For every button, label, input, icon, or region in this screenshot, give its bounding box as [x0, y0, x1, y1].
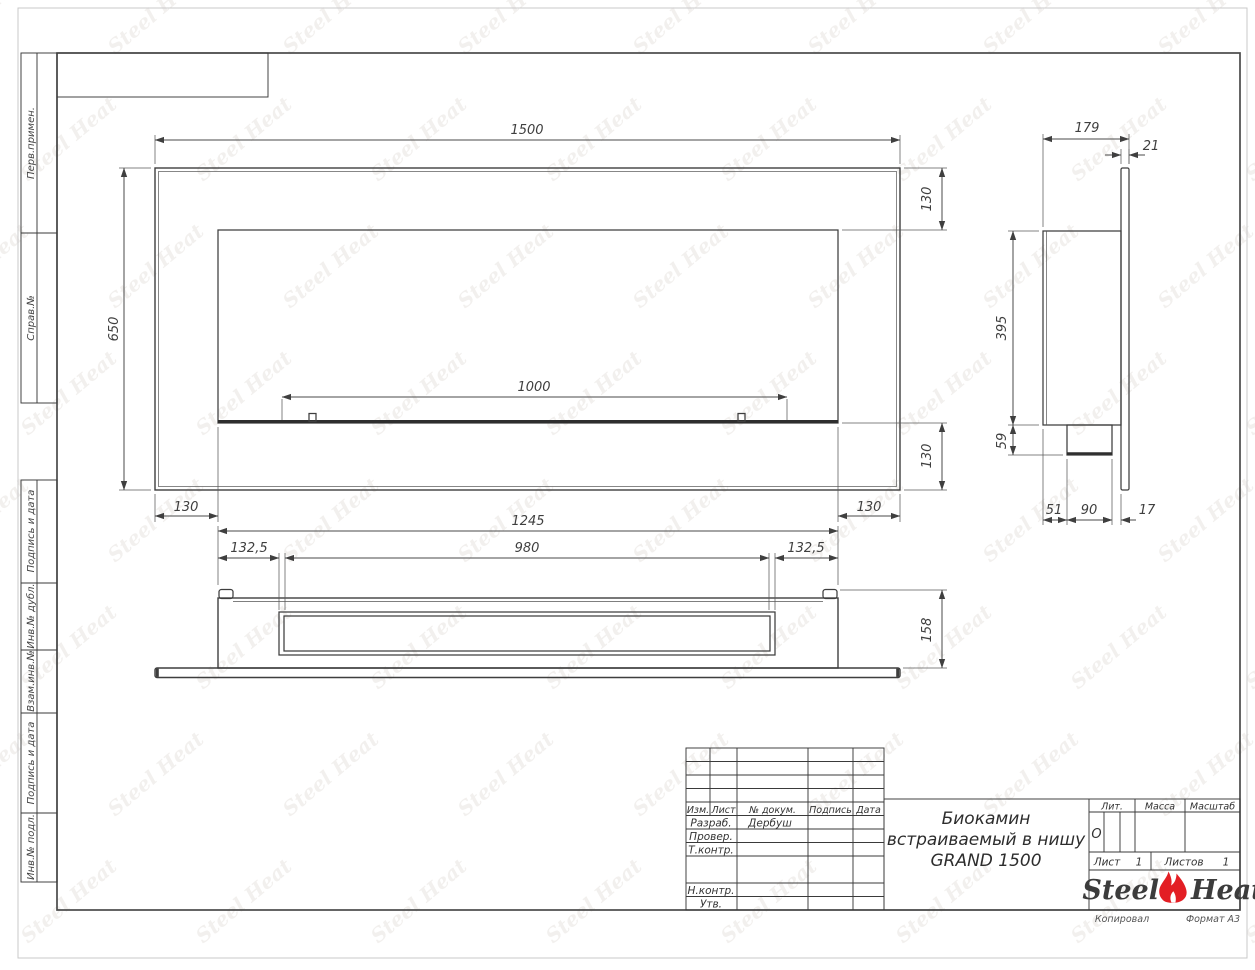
watermark-text: Steel Heat [891, 345, 997, 439]
watermark-text: Steel Heat [891, 91, 997, 185]
dim-front-width: 1500 [510, 123, 543, 138]
clip-left [219, 590, 233, 599]
dim-bottom-opening: 980 [515, 541, 540, 556]
sheet-label: Лист [1093, 857, 1121, 869]
col-doc: № докум. [748, 805, 796, 816]
sidebar-label: Инв.№ подл. [26, 814, 37, 880]
role-label: Разраб. [690, 818, 731, 830]
format-caption: Формат А3 [1186, 914, 1240, 925]
front-view: 1500 650 130 130 1000 130 130 [107, 123, 947, 522]
col-list: Лист [710, 805, 736, 816]
role-label: Утв. [700, 899, 722, 911]
dim-bottom-depth: 158 [920, 618, 935, 643]
sheets-label: Листов [1163, 857, 1203, 869]
col-izm: Изм. [687, 805, 709, 816]
lit-label: Лит. [1100, 802, 1123, 813]
dim-front-height: 650 [107, 317, 122, 342]
watermark-text: Steel Heat [453, 726, 559, 820]
watermark-text: Steel Heat [803, 0, 909, 59]
sidebar-box: Справ.№ [21, 233, 57, 403]
watermark-text: Steel Heat [366, 599, 472, 693]
watermark-text: Steel Heat [1066, 345, 1172, 439]
dim-burner-depth: 90 [1081, 503, 1098, 518]
watermark-text: Steel Heat [1153, 0, 1255, 59]
watermark-text: Steel Heat [453, 0, 559, 59]
mass-label: Масса [1145, 802, 1175, 813]
watermark-text: Steel Heat [716, 345, 822, 439]
watermark-text: Steel Heat [1241, 345, 1255, 439]
scale-label: Масштаб [1190, 802, 1235, 813]
dim-front-offset-top: 130 [920, 187, 935, 212]
col-sign: Подпись [809, 805, 852, 816]
watermark-text: Steel Heat [453, 218, 559, 312]
watermark-text: Steel Heat [541, 599, 647, 693]
watermark-text: Steel Heat [716, 599, 822, 693]
sidebar-label: Подпись и дата [26, 490, 37, 573]
watermark-text: Steel Heat [716, 853, 822, 947]
watermark-text: Steel Heat [1241, 91, 1255, 185]
sidebar-box: Инв.№ дубл. [21, 583, 57, 650]
bottom-slot-inner [284, 616, 770, 651]
dim-back-offset: 51 [1046, 503, 1063, 518]
watermark-text: Steel Heat [191, 599, 297, 693]
watermark-text: Steel Heat [803, 218, 909, 312]
role-label: Провер. [689, 831, 733, 843]
watermark-text: Steel Heat [628, 218, 734, 312]
watermark-text: Steel Heat [0, 0, 34, 59]
dim-panel-thickness: 21 [1143, 139, 1160, 154]
watermark-text: Steel Heat [16, 345, 122, 439]
watermark-text: Steel Heat [103, 726, 209, 820]
role-label: Н.контр. [688, 885, 735, 897]
copied-caption: Копировал [1095, 914, 1149, 925]
side-front-panel [1121, 168, 1129, 490]
dim-burner-height: 59 [995, 433, 1010, 450]
lit-value: О [1091, 827, 1101, 842]
dim-bottom-margin-left: 132,5 [230, 541, 267, 556]
doc-title-line3: GRAND 1500 [930, 851, 1041, 871]
sidebar-label: Справ.№ [26, 295, 37, 340]
col-date: Дата [855, 805, 881, 816]
watermark-text: Steel Heat [103, 218, 209, 312]
logo-word2: Heat [1190, 875, 1255, 906]
sidebar-label: Инв.№ дубл. [25, 583, 37, 648]
watermark-text: Steel Heat [541, 345, 647, 439]
dim-bottom-overall: 1245 [511, 514, 544, 529]
sidebar-box: Подпись и дата [21, 480, 57, 583]
dim-bottom-margin-right: 132,5 [787, 541, 824, 556]
dim-front-offset-right: 130 [857, 500, 882, 515]
watermark-text: Steel Heat [628, 0, 734, 59]
watermark-text: Steel Heat [191, 345, 297, 439]
sheet-value: 1 [1136, 857, 1143, 869]
logo-word1: Steel [1082, 875, 1159, 906]
dim-body-height: 395 [995, 316, 1010, 341]
watermark-text: Steel Heat [1066, 599, 1172, 693]
dim-burner-width: 1000 [517, 380, 550, 395]
watermark-text: Steel Heat [191, 853, 297, 947]
bottom-plate [155, 668, 900, 678]
sidebar-label: Взам.инв.№ [26, 650, 37, 712]
sidebar-box: Инв.№ подл. [21, 813, 57, 882]
top-left-stamp-box [57, 53, 268, 97]
doc-title-line1: Биокамин [942, 809, 1031, 829]
watermark-text: Steel Heat [103, 0, 209, 59]
dim-side-depth: 179 [1075, 121, 1100, 136]
watermark-text: Steel Heat [278, 218, 384, 312]
doc-title-line2: встраиваемый в нишу [887, 830, 1086, 850]
watermark-text: Steel Heat [366, 853, 472, 947]
front-outer-frame [155, 168, 900, 490]
clip-right [823, 590, 837, 599]
watermark-text: Steel Heat [541, 853, 647, 947]
dim-front-offset-left: 130 [174, 500, 199, 515]
dim-front-offset-bottom: 130 [920, 444, 935, 469]
dim-front-gap: 17 [1139, 503, 1156, 518]
steelheat-logo: Steel Heat [1082, 872, 1255, 907]
watermark-text: Steel Heat [1241, 599, 1255, 693]
watermark-text: Steel Heat [891, 599, 997, 693]
watermark-text: Steel Heat [278, 0, 384, 59]
sidebar-box: Подпись и дата [21, 713, 57, 813]
watermark-text: Steel Heat [978, 726, 1084, 820]
drawing-sheet: Steel HeatSteel HeatSteel HeatSteel Heat… [0, 0, 1255, 970]
role-value: Дербуш [747, 818, 792, 830]
role-label: Т.контр. [688, 845, 734, 857]
front-outer-frame-inner-line [159, 172, 897, 487]
watermark-text: Steel Heat [978, 0, 1084, 59]
sidebar-label: Подпись и дата [26, 722, 37, 805]
watermark-text: Steel Heat [978, 218, 1084, 312]
watermark-text: Steel Heat [366, 345, 472, 439]
footer: Копировал Формат А3 [1095, 914, 1240, 925]
bottom-slot-outer [279, 612, 775, 655]
watermark-text: Steel Heat [278, 726, 384, 820]
sheets-value: 1 [1223, 857, 1230, 869]
sidebar-label: Перв.примен. [26, 107, 37, 179]
